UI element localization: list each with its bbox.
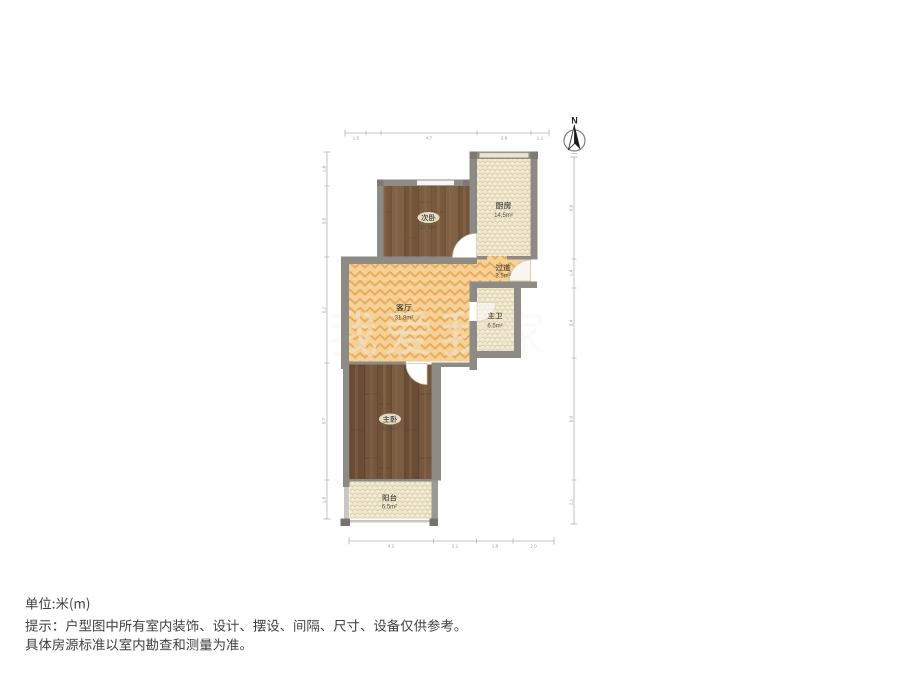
- svg-text:6.5m²: 6.5m²: [487, 324, 502, 330]
- svg-text:6.0: 6.0: [569, 415, 574, 422]
- svg-text:5.2: 5.2: [322, 306, 327, 313]
- svg-text:6.5m²: 6.5m²: [382, 505, 397, 511]
- svg-text:N: N: [571, 116, 577, 126]
- svg-text:31.8m²: 31.8m²: [395, 316, 414, 322]
- svg-text:3.5m²: 3.5m²: [495, 274, 510, 280]
- svg-text:2.1: 2.1: [569, 498, 574, 505]
- svg-text:1.4: 1.4: [569, 269, 574, 276]
- svg-text:3.5: 3.5: [322, 217, 327, 224]
- svg-text:1.8: 1.8: [492, 544, 499, 549]
- svg-text:17.5m²: 17.5m²: [420, 225, 437, 231]
- svg-text:5.7: 5.7: [322, 417, 327, 424]
- svg-text:26.5m²: 26.5m²: [381, 427, 398, 433]
- svg-text:1.0: 1.0: [353, 136, 360, 141]
- svg-text:1.6: 1.6: [322, 165, 327, 172]
- svg-text:4.7: 4.7: [426, 136, 433, 141]
- svg-text:2.8: 2.8: [501, 136, 508, 141]
- svg-text:14.5m²: 14.5m²: [494, 213, 513, 219]
- svg-text:2.0: 2.0: [530, 544, 537, 549]
- svg-text:4.2: 4.2: [388, 544, 395, 549]
- svg-text:2.1: 2.1: [452, 544, 459, 549]
- svg-text:3.4: 3.4: [569, 319, 574, 326]
- svg-text:1.1: 1.1: [537, 136, 544, 141]
- svg-text:1.9: 1.9: [322, 496, 327, 503]
- svg-text:5.0: 5.0: [569, 204, 574, 211]
